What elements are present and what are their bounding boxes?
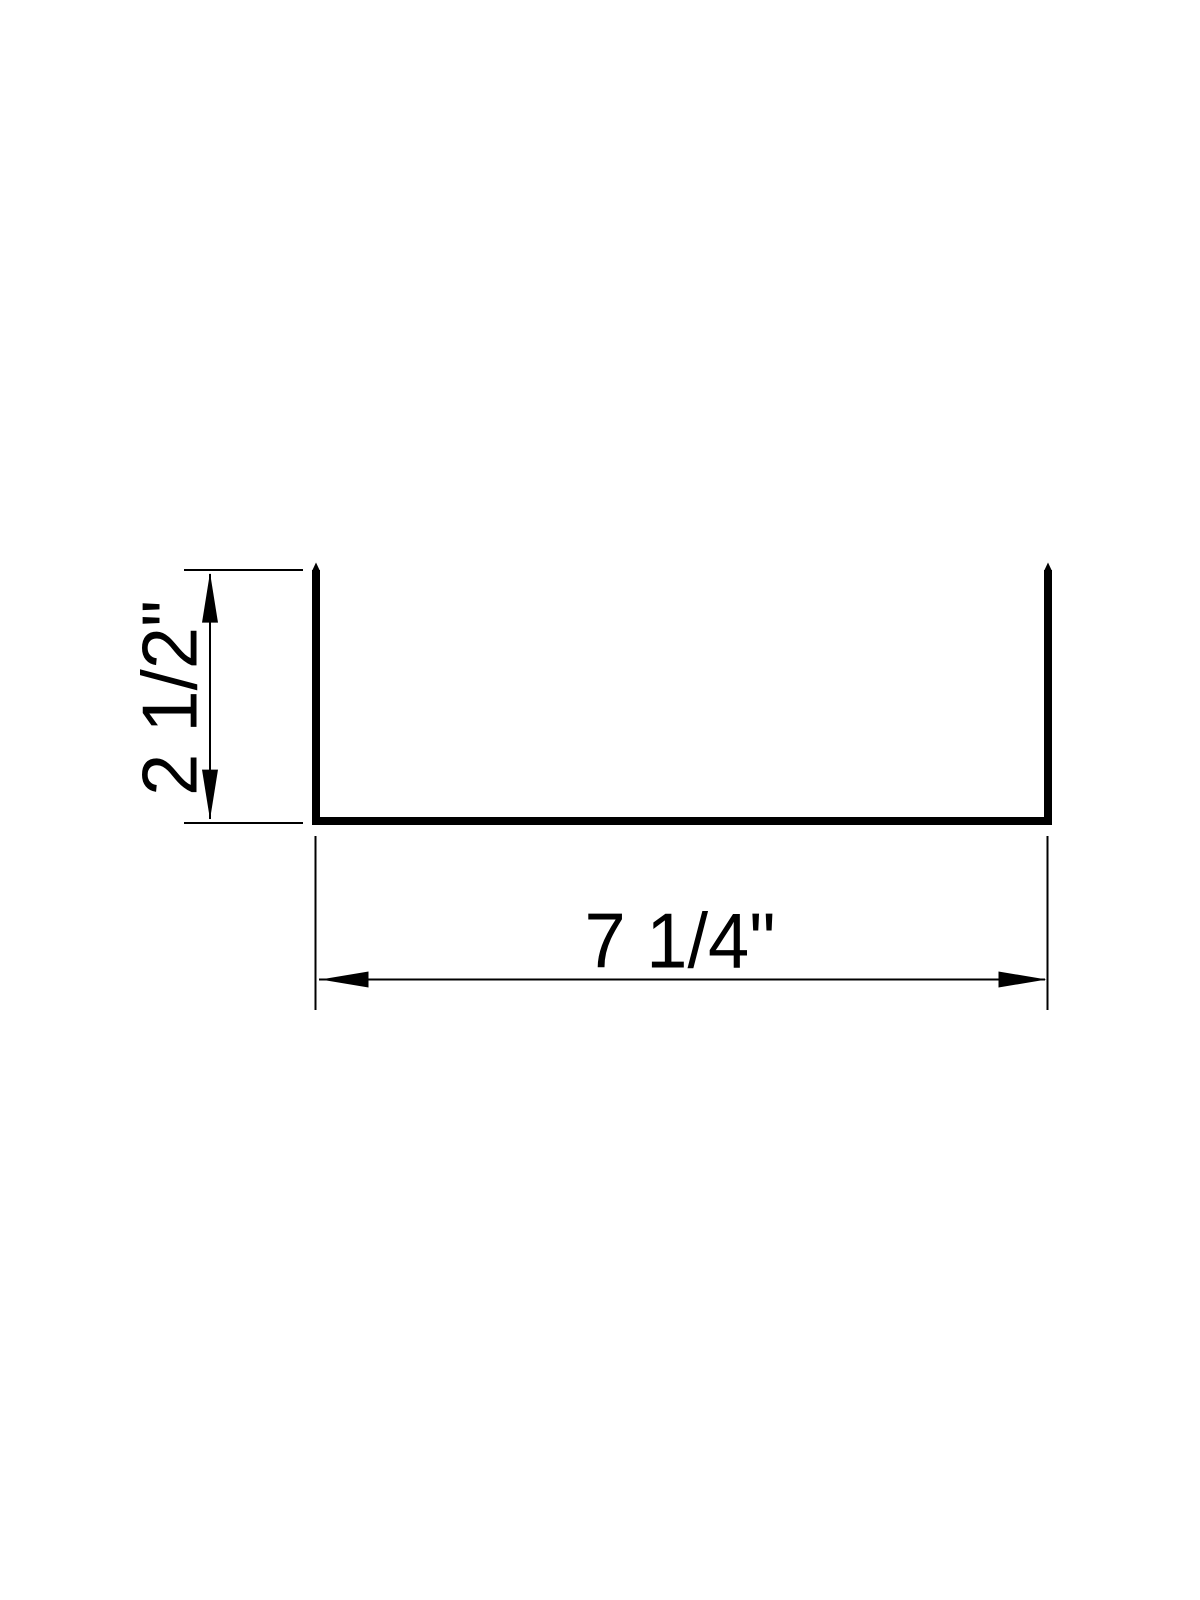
svg-text:2 1/2": 2 1/2"	[126, 600, 214, 796]
svg-text:7 1/4": 7 1/4"	[585, 897, 776, 985]
